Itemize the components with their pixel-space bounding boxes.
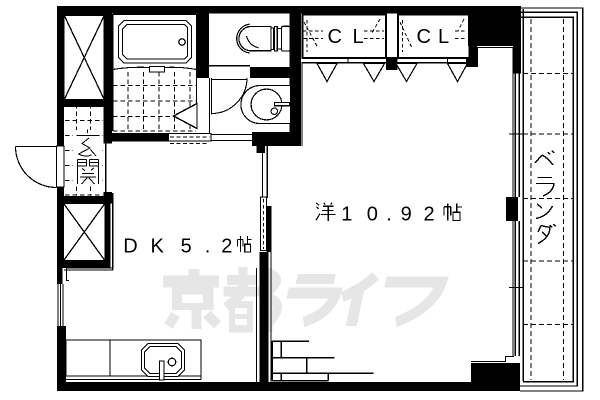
svg-text:L: L [353, 26, 364, 48]
svg-text:9: 9 [401, 203, 412, 225]
svg-text:5: 5 [181, 236, 192, 258]
svg-text:.: . [386, 203, 392, 225]
svg-text:C: C [328, 26, 342, 48]
svg-text:1: 1 [341, 203, 352, 225]
svg-text:2: 2 [424, 203, 435, 225]
svg-text:.: . [205, 236, 211, 258]
svg-text:K: K [151, 236, 165, 258]
svg-text:D: D [123, 236, 137, 258]
svg-text:2: 2 [221, 236, 232, 258]
svg-text:L: L [438, 26, 449, 48]
svg-text:C: C [417, 26, 431, 48]
svg-text:0: 0 [367, 203, 378, 225]
